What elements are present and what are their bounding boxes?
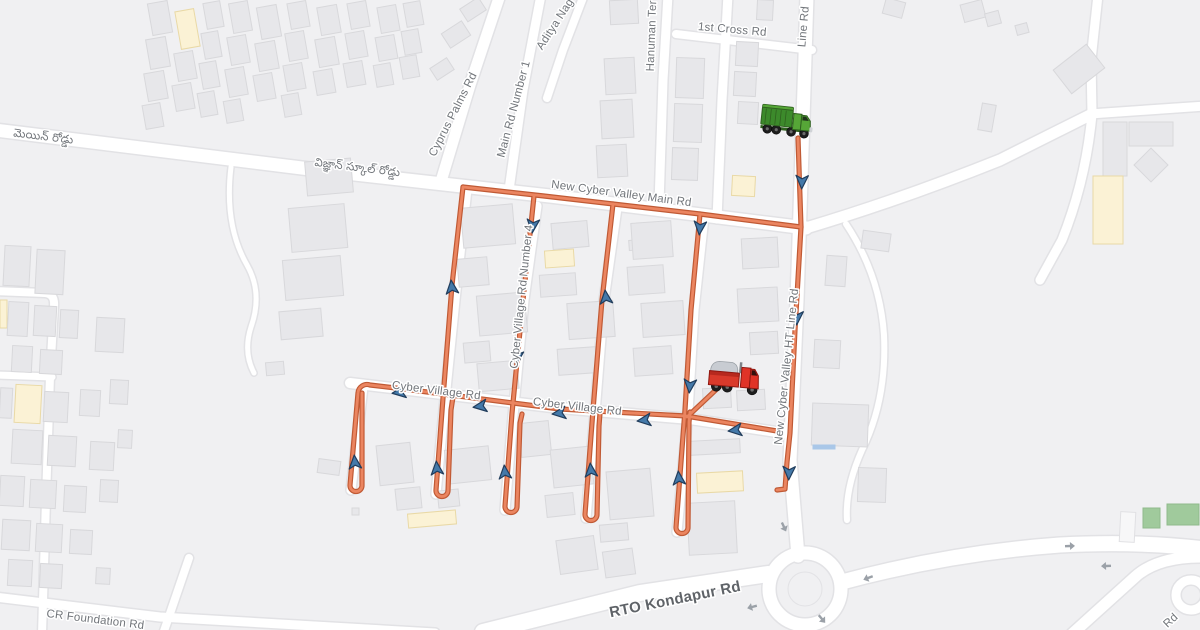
building [401,29,422,56]
building [609,0,638,25]
building [283,63,306,92]
building [690,439,741,456]
building [79,389,100,416]
roundabout-island [788,572,822,606]
building [600,99,634,139]
building [95,317,125,352]
building [539,273,576,297]
building [39,563,62,588]
building [813,445,835,449]
building [457,257,489,288]
map-canvas[interactable]: 1st Cross RdLine RdHanuman TerAditya Nag… [0,0,1200,630]
building [96,568,111,585]
building [1,519,31,550]
building [567,300,615,339]
building [7,301,29,336]
building [14,384,42,423]
building [811,403,868,447]
building [1129,122,1173,146]
building [557,347,597,376]
building [687,501,738,555]
building [673,104,702,143]
building [89,441,114,470]
building [518,421,551,458]
building [343,61,366,88]
building [1167,504,1199,525]
building [47,435,77,466]
building [1093,176,1123,244]
building [317,459,341,476]
building [1143,508,1160,528]
building [376,442,414,485]
building [545,493,575,518]
building [602,548,635,578]
building [675,58,704,99]
building [756,0,773,20]
building [288,204,348,253]
building [395,487,422,510]
building [544,249,574,268]
building [0,475,25,506]
building [641,301,685,338]
building [345,31,368,60]
building [0,388,13,419]
building [7,559,32,586]
building [604,57,636,95]
building [737,101,758,124]
building [347,1,370,30]
building [463,341,491,363]
building [29,479,56,508]
building [749,331,778,354]
building [1119,512,1136,543]
building [282,256,343,301]
building [1103,122,1127,176]
truck-bumper [809,127,813,132]
building [399,55,420,80]
building [142,103,164,130]
building [63,485,86,512]
building [287,1,310,30]
building [460,204,515,248]
building [813,339,840,368]
building [556,536,598,575]
building [279,308,323,340]
building [69,529,92,554]
building [172,83,195,112]
building [633,346,673,377]
building [59,310,78,339]
building [861,230,891,252]
building [118,430,133,449]
building [737,287,779,323]
building [373,63,394,88]
building [0,300,7,328]
building [671,148,698,181]
building [733,71,756,96]
building [35,523,62,552]
building [606,468,654,520]
building [109,380,128,405]
map[interactable]: 1st Cross RdLine RdHanuman TerAditya Nag… [0,0,1200,630]
building [352,508,359,515]
building [265,361,284,376]
building [3,245,31,286]
building [43,391,69,422]
building [281,93,302,118]
building [255,40,280,71]
building [315,36,340,67]
building [731,175,755,196]
building [551,220,589,249]
building [39,349,62,374]
building [317,4,342,35]
building [253,73,276,102]
building [313,69,336,96]
building [11,429,43,465]
building [11,345,32,372]
building [197,91,218,118]
building [857,468,886,503]
building [144,70,169,101]
road [0,375,52,377]
building [985,10,1002,26]
road-label: Hanuman Ter [645,0,659,71]
building [627,265,665,295]
building [223,99,244,124]
building [375,35,398,62]
building [735,41,758,66]
building [35,249,65,294]
building [33,305,57,336]
building [631,221,673,260]
building [596,144,628,178]
building [697,471,744,493]
building [825,255,847,286]
building [741,237,779,269]
building [599,523,628,542]
building [99,480,118,503]
building [403,1,424,28]
building [377,5,400,34]
